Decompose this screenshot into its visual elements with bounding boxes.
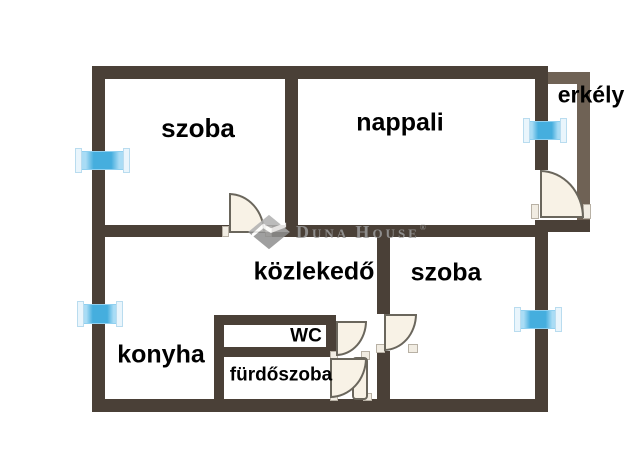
jamb-szoba-bottom-right bbox=[408, 344, 418, 353]
wall-erkely-bottom bbox=[535, 220, 590, 232]
room-label-wc: WC bbox=[290, 327, 322, 346]
wall-wc-left bbox=[214, 315, 224, 399]
window-szoba-top bbox=[77, 151, 128, 170]
wall-right-upper bbox=[535, 66, 548, 170]
room-label-kozlekedo: közlekedő bbox=[254, 260, 375, 285]
jamb-erkely-right bbox=[583, 204, 591, 219]
jamb-erkely-left bbox=[531, 204, 539, 219]
wall-wc-furdo-divider bbox=[214, 347, 336, 357]
wall-wc-top bbox=[214, 315, 336, 325]
floor-plan-canvas: szoba nappali erkély közlekedő szoba kon… bbox=[0, 0, 640, 463]
wall-bottom bbox=[92, 399, 548, 412]
room-label-erkely: erkély bbox=[558, 84, 625, 107]
wall-kozlekedo-szoba-a bbox=[377, 237, 390, 314]
jamb-szoba-top-right bbox=[265, 226, 272, 237]
room-label-szoba-bottom: szoba bbox=[411, 261, 482, 286]
wall-szoba-nappali bbox=[285, 79, 298, 225]
room-label-furdoszoba: fürdőszoba bbox=[230, 366, 332, 385]
wall-mid-right bbox=[265, 225, 535, 237]
wall-left bbox=[92, 66, 105, 412]
window-szoba-bottom bbox=[516, 310, 560, 329]
room-label-konyha: konyha bbox=[117, 343, 205, 368]
window-konyha bbox=[79, 304, 121, 324]
door-szoba-top bbox=[229, 193, 265, 233]
room-label-nappali: nappali bbox=[356, 111, 444, 136]
window-erkely bbox=[525, 121, 565, 140]
wall-top bbox=[92, 66, 548, 79]
jamb-szoba-top-left bbox=[222, 226, 229, 237]
wall-kozlekedo-szoba-b bbox=[377, 351, 390, 399]
room-label-szoba-top: szoba bbox=[161, 115, 235, 141]
wall-mid-left bbox=[105, 225, 229, 237]
